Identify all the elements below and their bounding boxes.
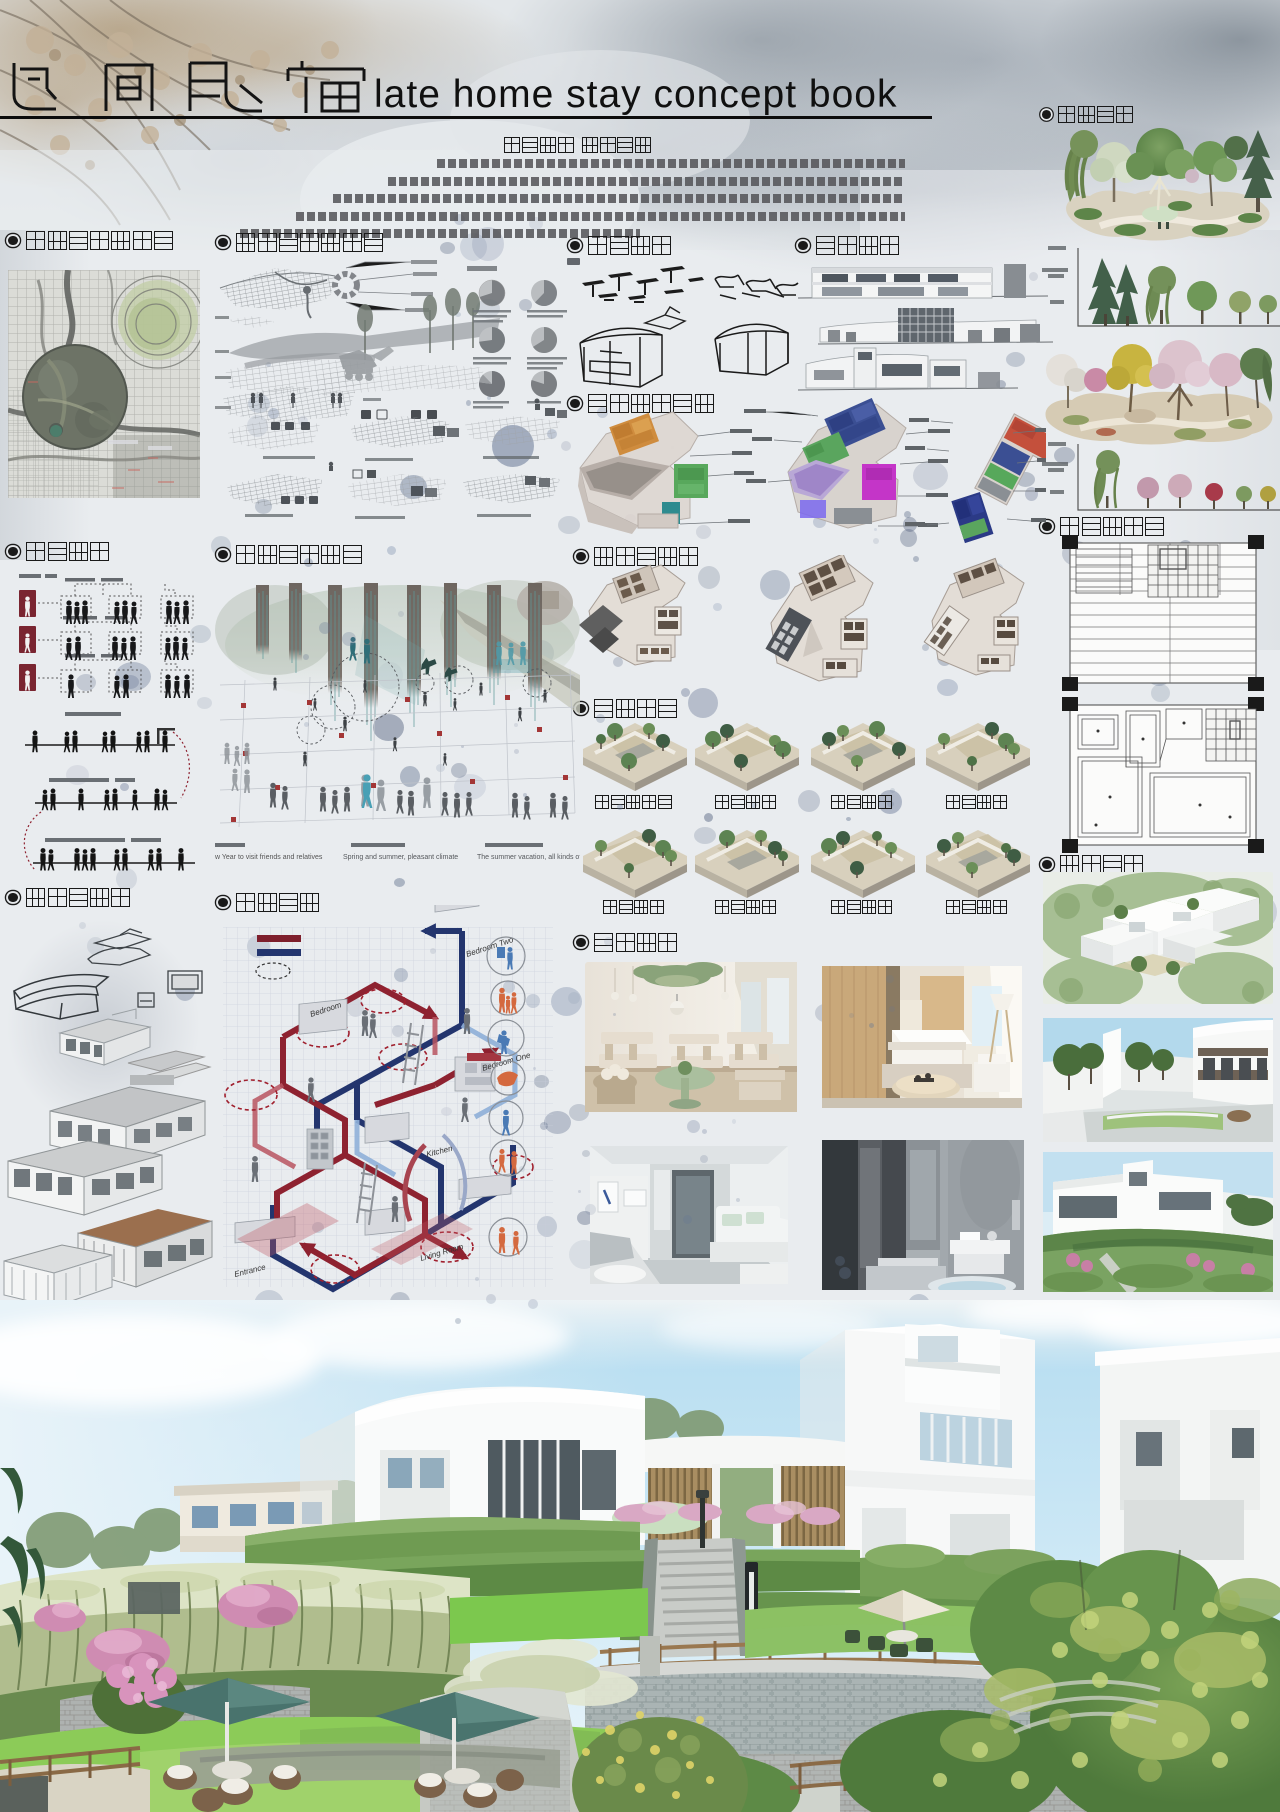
svg-text:The summer vacation, all kinds: The summer vacation, all kinds of travel — [477, 854, 580, 861]
svg-text:w Year to visit friends and re: w Year to visit friends and relatives — [215, 854, 323, 861]
svg-text:Spring and summer, pleasant cl: Spring and summer, pleasant climate — [343, 854, 458, 861]
